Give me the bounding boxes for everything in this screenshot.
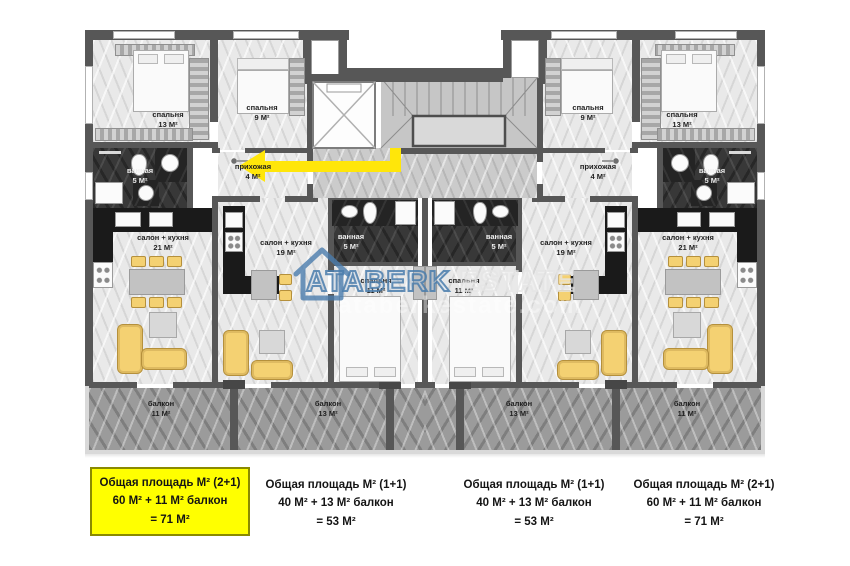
summary-line: Общая площадь М² (2+1): [94, 474, 246, 492]
summary-line: 60 М² + 11 М² балкон: [94, 492, 246, 510]
room-label-bedroom-13-left: спальня13 М²: [152, 110, 183, 130]
summary-line: 40 М² + 13 М² балкон: [450, 494, 618, 512]
room-label-bathroom-mid-right: ванная5 М²: [486, 232, 512, 252]
room-labels: спальня13 М² спальня9 М² ванная5 М² прих…: [85, 30, 765, 458]
room-label-hallway-left: прихожая4 М²: [235, 162, 271, 182]
summary-line: Общая площадь М² (1+1): [252, 476, 420, 494]
room-label-salon-21-left: салон + кухня21 М²: [137, 233, 189, 253]
room-label-bathroom-mid-left: ванная5 М²: [338, 232, 364, 252]
summary-apartment-2plus1-left: Общая площадь М² (2+1) 60 М² + 11 М² бал…: [90, 467, 250, 536]
page: { "watermark": { "brand": "ATABERK", "br…: [0, 0, 850, 566]
summary-line: 60 М² + 11 М² балкон: [618, 494, 790, 512]
room-label-salon-19-right: салон + кухня19 М²: [540, 238, 592, 258]
room-label-bedroom-11-left: спальня11 М²: [360, 276, 391, 296]
room-label-bathroom-left: ванная5 М²: [127, 166, 153, 186]
summary-line: = 53 М²: [252, 513, 420, 531]
summary-line: = 71 М²: [94, 511, 246, 529]
summary-line: = 53 М²: [450, 513, 618, 531]
room-label-salon-21-right: салон + кухня21 М²: [662, 233, 714, 253]
summary-line: Общая площадь М² (1+1): [450, 476, 618, 494]
room-label-bedroom-13-right: спальня13 М²: [666, 110, 697, 130]
room-label-hallway-right: прихожая4 М²: [580, 162, 616, 182]
room-label-salon-19-left: салон + кухня19 М²: [260, 238, 312, 258]
room-label-bedroom-9-right: спальня9 М²: [572, 103, 603, 123]
room-label-balcony-11-right: балкон11 М²: [674, 399, 700, 419]
summary-apartment-1plus1-right: Общая площадь М² (1+1) 40 М² + 13 М² бал…: [450, 476, 618, 531]
room-label-balcony-13-left: балкон13 М²: [315, 399, 341, 419]
floor-plan: спальня13 М² спальня9 М² ванная5 М² прих…: [85, 30, 765, 458]
summary-line: Общая площадь М² (2+1): [618, 476, 790, 494]
room-label-balcony-13-right: балкон13 М²: [506, 399, 532, 419]
summary-apartment-2plus1-right: Общая площадь М² (2+1) 60 М² + 11 М² бал…: [618, 476, 790, 531]
room-label-bedroom-9-left: спальня9 М²: [246, 103, 277, 123]
room-label-bedroom-11-right: спальня11 М²: [448, 276, 479, 296]
summary-apartment-1plus1-left: Общая площадь М² (1+1) 40 М² + 13 М² бал…: [252, 476, 420, 531]
summary-line: = 71 М²: [618, 513, 790, 531]
summary-line: 40 М² + 13 М² балкон: [252, 494, 420, 512]
room-label-balcony-11-left: балкон11 М²: [148, 399, 174, 419]
room-label-bathroom-right: ванная5 М²: [699, 166, 725, 186]
